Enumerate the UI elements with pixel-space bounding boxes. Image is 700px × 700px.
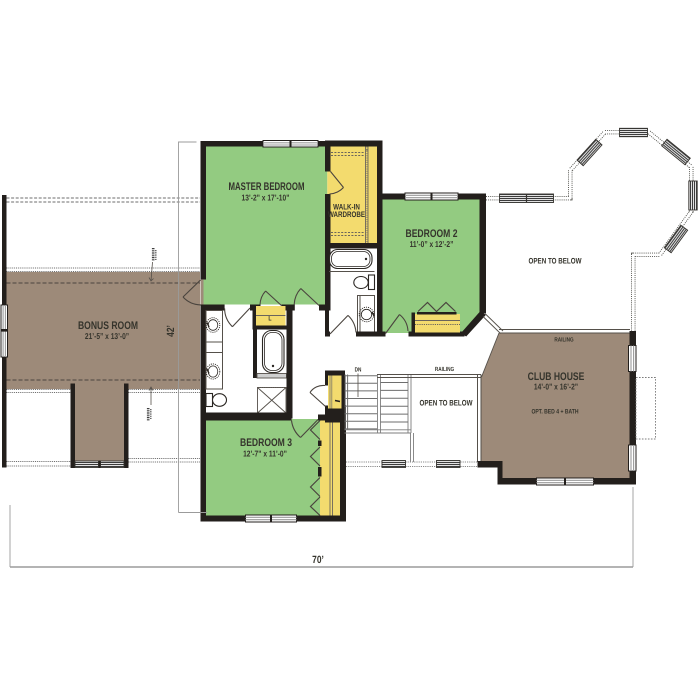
svg-text:DN: DN: [355, 367, 362, 374]
svg-text:70’: 70’: [312, 554, 324, 566]
svg-text:12’-7” x 11’-0”: 12’-7” x 11’-0”: [243, 449, 287, 459]
svg-text:OPEN TO BELOW: OPEN TO BELOW: [529, 257, 582, 266]
svg-text:11’-0” x 12’-2”: 11’-0” x 12’-2”: [410, 239, 454, 249]
svg-text:13’-2” x 17’-10”: 13’-2” x 17’-10”: [242, 193, 290, 203]
svg-text:BEDROOM 3: BEDROOM 3: [240, 437, 292, 449]
svg-text:OPT. BED 4 + BATH: OPT. BED 4 + BATH: [531, 409, 578, 416]
svg-text:42’: 42’: [165, 325, 177, 337]
svg-text:MASTER BEDROOM: MASTER BEDROOM: [229, 181, 305, 193]
svg-text:21’-5” x 13’-0”: 21’-5” x 13’-0”: [85, 331, 129, 341]
svg-text:L: L: [268, 316, 271, 323]
svg-text:OPEN TO BELOW: OPEN TO BELOW: [420, 399, 473, 408]
svg-text:RAILING: RAILING: [554, 337, 573, 344]
svg-text:RAILING: RAILING: [435, 366, 454, 373]
svg-text:14’-0” x 16’-2”: 14’-0” x 16’-2”: [534, 382, 578, 392]
svg-text:WARDROBE: WARDROBE: [328, 210, 366, 219]
